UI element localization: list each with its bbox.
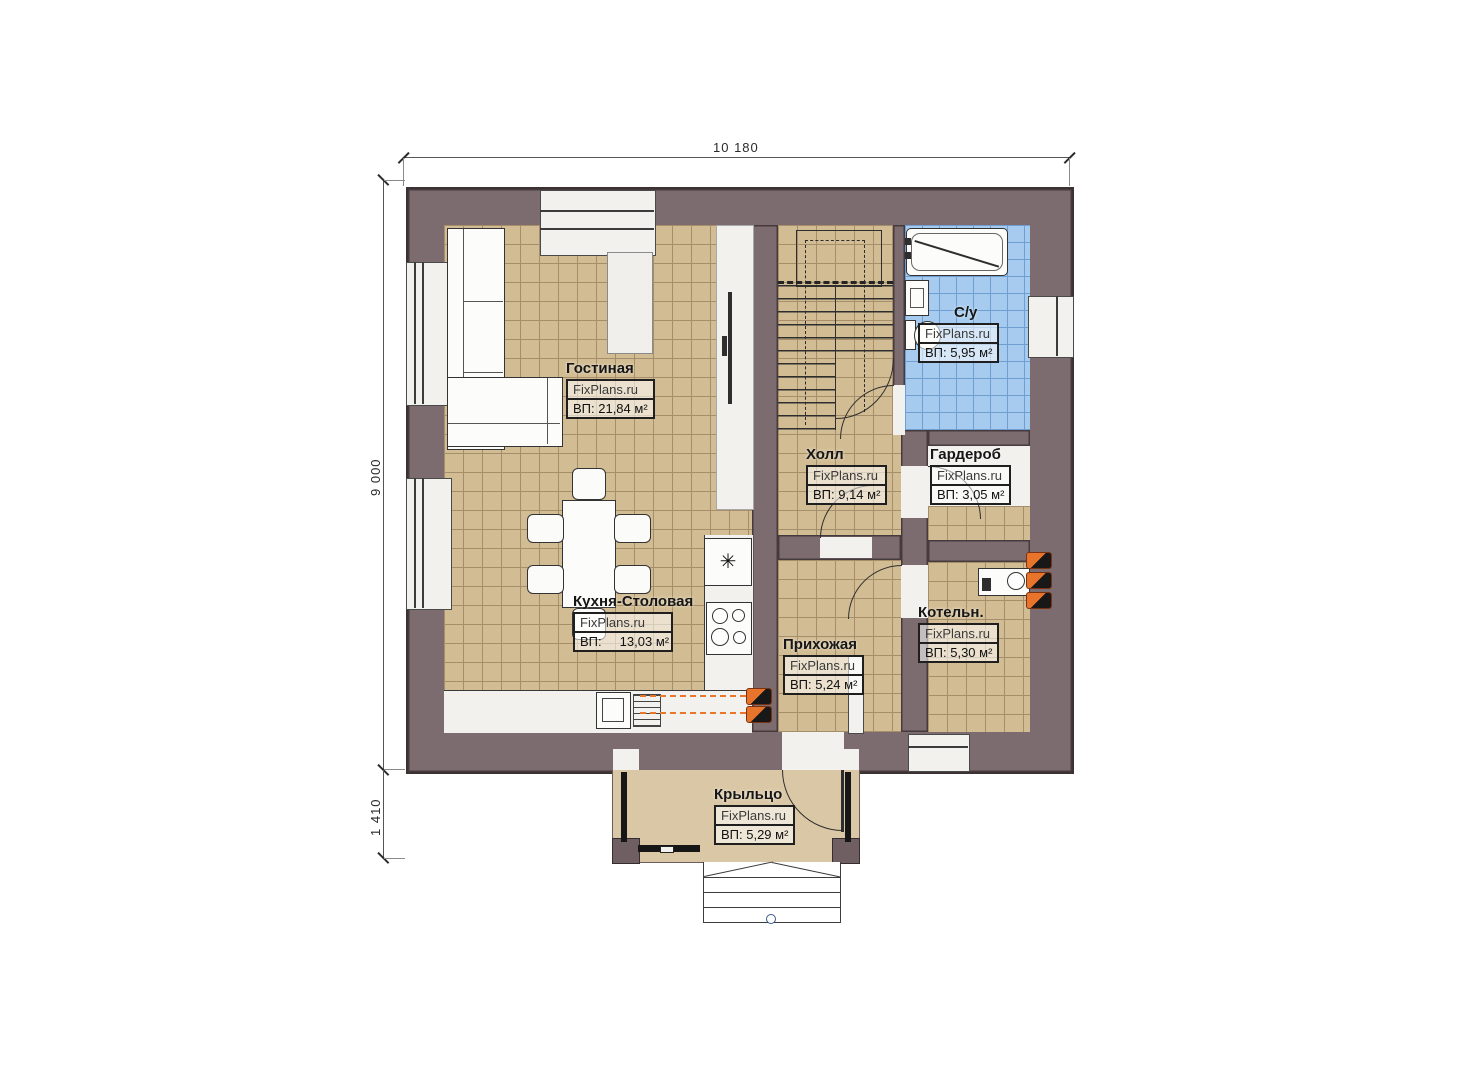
radiator xyxy=(1026,552,1052,569)
step-edge xyxy=(704,892,840,893)
room-infobox: FixPlans.ru ВП: 3,05 м² xyxy=(930,465,1011,505)
watermark-text: FixPlans.ru xyxy=(808,467,885,486)
step-diagonal xyxy=(772,862,841,878)
stairs-walkline-top xyxy=(805,240,865,241)
room-title: Гардероб xyxy=(930,446,1011,463)
room-label-boiler: Котельн. FixPlans.ru ВП: 5,30 м² xyxy=(918,604,999,663)
living-rug xyxy=(607,252,653,354)
window-left-upper xyxy=(406,262,452,406)
room-label-living: Гостиная FixPlans.ru ВП: 21,84 м² xyxy=(566,360,655,419)
room-title: С/у xyxy=(918,304,999,321)
stairs-section-cut-line xyxy=(778,281,893,284)
porch-railing-left xyxy=(621,772,627,842)
watermark-text: FixPlans.ru xyxy=(568,381,653,400)
tv-mount xyxy=(722,336,727,356)
step-diagonal xyxy=(704,861,773,877)
stove-burner xyxy=(732,609,745,622)
sofa-cushion-line xyxy=(464,301,503,302)
dining-chair xyxy=(572,468,606,500)
dimension-line-left xyxy=(383,180,384,770)
dining-chair xyxy=(527,514,564,543)
window-top-frame-line xyxy=(540,210,654,212)
porch-wall-gap xyxy=(613,749,639,770)
heating-pipe-dashed xyxy=(640,695,746,697)
step-marker xyxy=(766,914,776,924)
kitchen-unit-symbol-box: ✳ xyxy=(704,538,752,586)
stove-burner xyxy=(733,631,746,644)
porch-railing-gate xyxy=(660,846,674,853)
room-area: ВП: 3,05 м² xyxy=(932,486,1009,503)
dimension-extension xyxy=(1069,158,1070,186)
room-infobox: FixPlans.ru ВП: 13,03 м² xyxy=(573,612,673,652)
room-infobox: FixPlans.ru ВП: 5,30 м² xyxy=(918,623,999,663)
room-infobox: FixPlans.ru ВП: 21,84 м² xyxy=(566,379,655,419)
room-label-porch: Крыльцо FixPlans.ru ВП: 5,29 м² xyxy=(714,786,795,845)
stairs-walkline-left xyxy=(805,240,806,425)
tv-partition-cabinet xyxy=(716,225,754,510)
bathtub-tap xyxy=(905,238,911,245)
room-title: Крыльцо xyxy=(714,786,795,803)
dimension-extension xyxy=(403,158,404,186)
porch-railing-right xyxy=(845,772,851,842)
wall-wardrobe-boiler xyxy=(928,540,1030,562)
room-infobox: FixPlans.ru ВП: 5,95 м² xyxy=(918,323,999,363)
door-opening-bathroom xyxy=(893,385,905,435)
dimension-label-top: 10 180 xyxy=(713,140,759,155)
radiator xyxy=(746,706,772,723)
room-area: ВП: 5,29 м² xyxy=(716,826,793,843)
window-left-upper-frame-line xyxy=(422,262,424,404)
stove-burner xyxy=(711,628,729,646)
room-title: Прихожая xyxy=(783,636,864,653)
room-infobox: FixPlans.ru ВП: 5,29 м² xyxy=(714,805,795,845)
room-title: Гостиная xyxy=(566,360,655,377)
window-top-frame-line xyxy=(540,228,654,230)
room-area: ВП: 9,14 м² xyxy=(808,486,885,503)
dimension-extension xyxy=(384,858,405,859)
window-left-lower-frame-line xyxy=(422,478,424,608)
room-area: ВП: 21,84 м² xyxy=(568,400,653,417)
room-area: ВП: 13,03 м² xyxy=(575,633,671,650)
watermark-text: FixPlans.ru xyxy=(920,625,997,644)
radiator xyxy=(1026,572,1052,589)
door-opening-hall xyxy=(820,537,872,558)
dimension-label-left: 9 000 xyxy=(368,458,383,496)
porch-steps xyxy=(703,862,841,923)
stairs-landing-outline xyxy=(796,230,882,287)
sofa-armrest-line xyxy=(547,378,548,444)
room-label-entry: Прихожая FixPlans.ru ВП: 5,24 м² xyxy=(783,636,864,695)
dining-table xyxy=(562,500,616,608)
stairs-left-flight xyxy=(778,285,836,430)
watermark-text: FixPlans.ru xyxy=(932,467,1009,486)
boiler-switch xyxy=(982,578,991,591)
floor-plan-canvas: ✳ xyxy=(0,0,1473,1080)
sofa-seat-section xyxy=(447,377,563,447)
window-bottom-frame-line xyxy=(908,746,968,748)
window-left-lower-frame-line xyxy=(414,478,416,608)
step-edge xyxy=(704,907,840,908)
room-label-bathroom: С/у FixPlans.ru ВП: 5,95 м² xyxy=(918,304,999,363)
window-left-lower xyxy=(406,478,452,610)
wall-bathroom-wardrobe xyxy=(928,430,1030,446)
window-left-upper-frame-line xyxy=(414,262,416,404)
boiler-dial xyxy=(1007,572,1025,590)
sofa-seat-line xyxy=(448,423,560,424)
sofa-cushion-line xyxy=(464,372,503,373)
room-label-hall: Холл FixPlans.ru ВП: 9,14 м² xyxy=(806,446,887,505)
window-top xyxy=(540,190,656,256)
room-infobox: FixPlans.ru ВП: 5,24 м² xyxy=(783,655,864,695)
watermark-text: FixPlans.ru xyxy=(716,807,793,826)
room-infobox: FixPlans.ru ВП: 9,14 м² xyxy=(806,465,887,505)
dining-chair xyxy=(614,514,651,543)
dimension-line-bottom-left xyxy=(383,770,384,858)
door-opening-wardrobe xyxy=(901,466,928,518)
room-area: ВП: 5,95 м² xyxy=(920,344,997,361)
stove-burner xyxy=(712,608,728,624)
dimension-extension xyxy=(384,180,405,181)
window-right-frame-line xyxy=(1056,296,1058,356)
dimension-line-top xyxy=(403,157,1070,158)
dining-chair xyxy=(527,565,564,594)
step-edge xyxy=(704,877,840,878)
kitchen-sink-basin xyxy=(602,698,624,722)
snowflake-symbol: ✳ xyxy=(720,551,737,573)
watermark-text: FixPlans.ru xyxy=(575,614,671,633)
radiator xyxy=(746,688,772,705)
room-title: Кухня-Столовая xyxy=(573,593,693,610)
room-title: Котельн. xyxy=(918,604,999,621)
window-bottom xyxy=(908,734,970,772)
dimension-label-bottom-left: 1 410 xyxy=(368,798,383,836)
dimension-extension xyxy=(384,769,405,770)
stairs-walkline-right xyxy=(864,240,865,412)
dining-chair xyxy=(614,565,651,594)
watermark-text: FixPlans.ru xyxy=(920,325,997,344)
kitchen-sink-drainer xyxy=(633,694,661,727)
room-label-wardrobe: Гардероб FixPlans.ru ВП: 3,05 м² xyxy=(930,446,1011,505)
tv-screen xyxy=(728,292,732,404)
room-label-kitchen: Кухня-Столовая FixPlans.ru ВП: 13,03 м² xyxy=(573,593,693,652)
watermark-text: FixPlans.ru xyxy=(785,657,862,676)
room-area: ВП: 5,24 м² xyxy=(785,676,862,693)
porch-wall-gap xyxy=(833,749,859,770)
heating-pipe-dashed xyxy=(640,712,746,714)
window-right xyxy=(1028,296,1074,358)
radiator xyxy=(1026,592,1052,609)
room-area: ВП: 5,30 м² xyxy=(920,644,997,661)
wall-living-hall xyxy=(752,225,778,732)
bathtub-tap xyxy=(905,252,911,259)
room-title: Холл xyxy=(806,446,887,463)
